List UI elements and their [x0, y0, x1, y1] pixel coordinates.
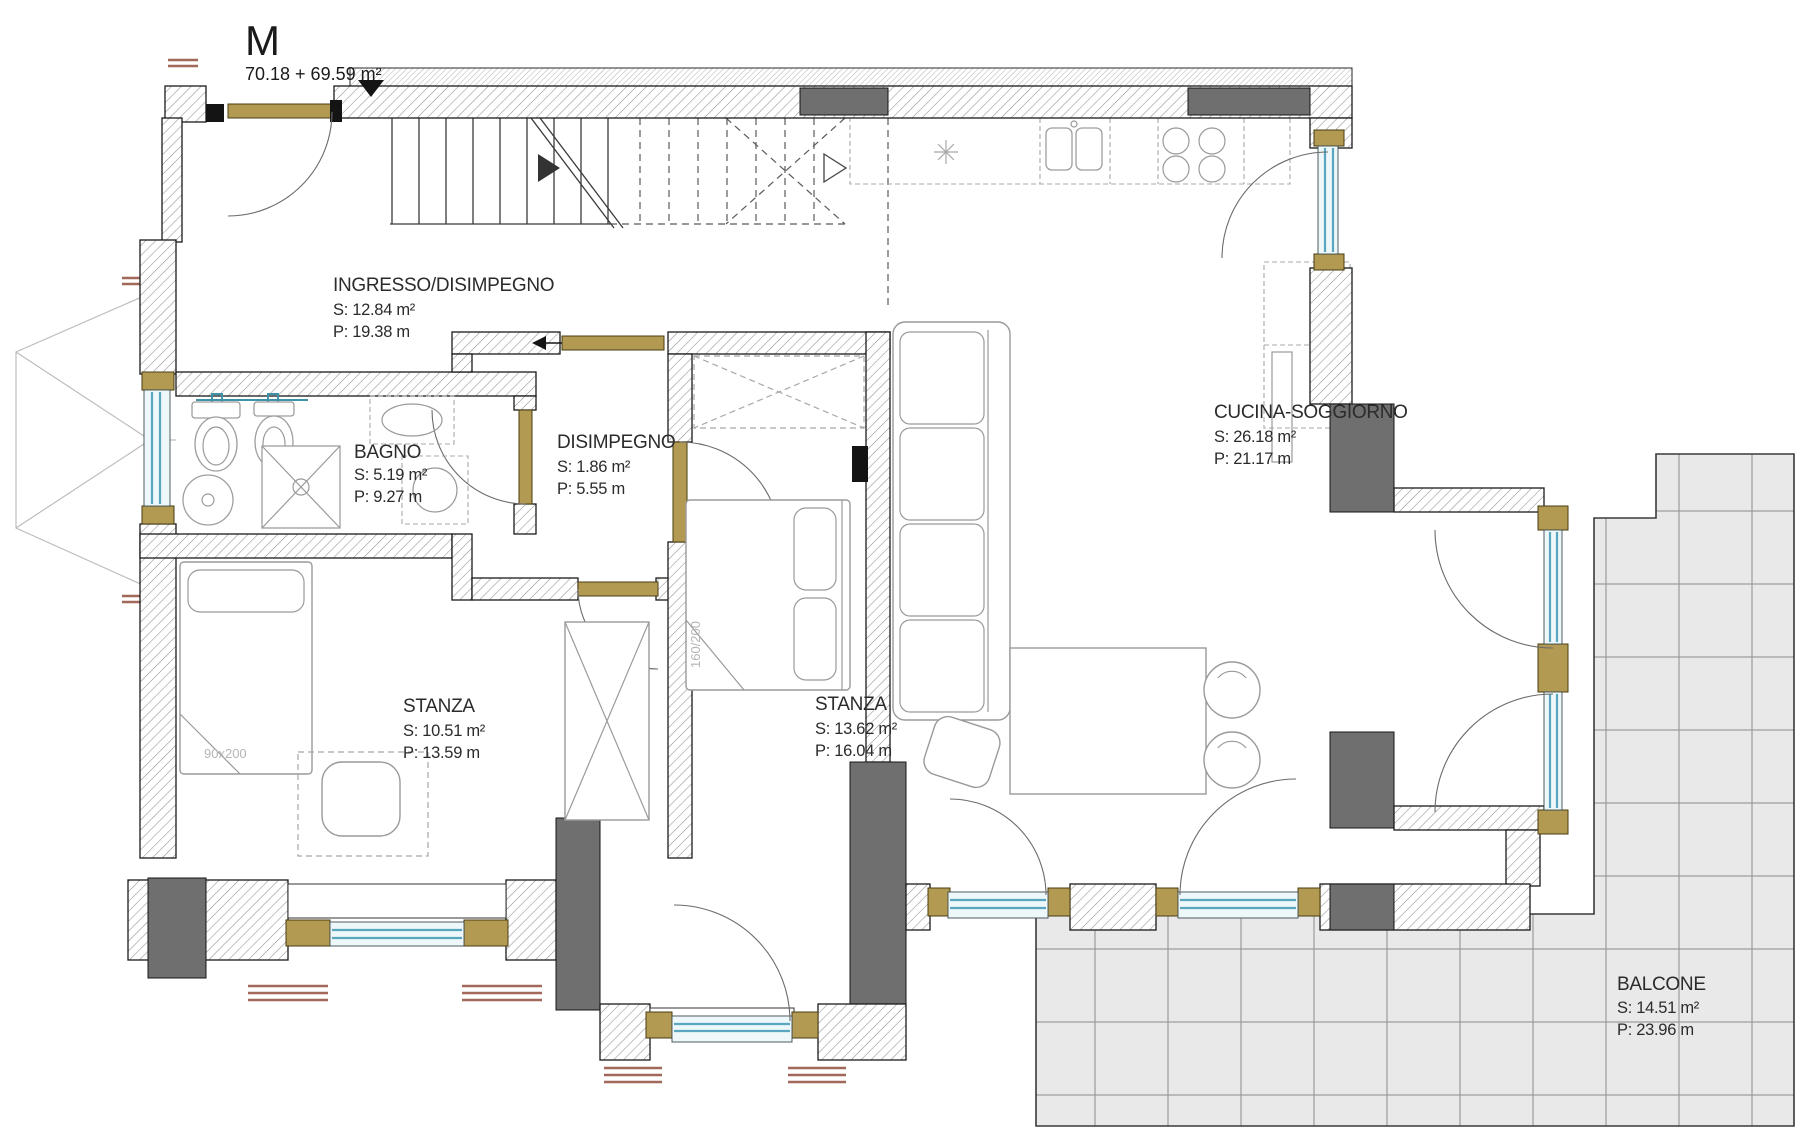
wall-bath-bottom [140, 534, 452, 558]
wall-divider-upper [668, 354, 692, 442]
floor-plan-drawing: M 70.18 + 69.59 m² INGRESSO/DISIMPEGNO S… [0, 0, 1804, 1135]
room-name: DISIMPEGNO [557, 432, 675, 453]
window-bedroom1 [286, 884, 508, 946]
single-bed [180, 562, 312, 774]
wall-niche-block [852, 446, 868, 482]
room-perimeter: P: 5.55 m [557, 480, 625, 498]
wall-bedroom2-bottom-a [600, 1004, 650, 1060]
room-perimeter: P: 13.59 m [403, 744, 480, 762]
wall-bath-east-upper [514, 396, 536, 410]
wall-right-upper [1310, 268, 1352, 404]
wall-bath-east-lower [514, 504, 536, 534]
room-surface: S: 12.84 m² [333, 301, 416, 319]
room-perimeter: P: 23.96 m [1617, 1021, 1694, 1039]
wall-mid-top-b [668, 332, 890, 354]
room-name: INGRESSO/DISIMPEGNO [333, 275, 554, 296]
wall-top-left [165, 86, 206, 122]
wall-left-upper [140, 240, 176, 374]
room-perimeter: P: 16.04 m [815, 742, 892, 760]
plan-title: M [245, 17, 280, 64]
wall-living-bottom-a [906, 884, 930, 930]
dining-table [1010, 648, 1206, 794]
room-surface: S: 14.51 m² [1617, 999, 1700, 1017]
entrance-jamb-block [206, 104, 224, 122]
room-surface: S: 1.86 m² [557, 458, 631, 476]
wall-living-bottom-b [1070, 884, 1156, 930]
shower-icon [262, 446, 340, 528]
room-perimeter: P: 21.17 m [1214, 450, 1291, 468]
toilet-icon [192, 402, 240, 471]
dining-chair-2 [1204, 732, 1260, 788]
room-label-stanza2: STANZA S: 13.62 m² P: 16.04 m [815, 694, 898, 760]
desk-chair [322, 762, 400, 836]
room-surface: S: 5.19 m² [354, 466, 428, 484]
room-perimeter: P: 19.38 m [333, 323, 410, 341]
pier-right-2 [1330, 732, 1394, 828]
room-perimeter: P: 9.27 m [354, 488, 422, 506]
room-surface: S: 10.51 m² [403, 722, 486, 740]
room-name: BAGNO [354, 442, 421, 463]
room-name: CUCINA-SOGGIORNO [1214, 402, 1408, 423]
wardrobe-bedroom1 [565, 622, 649, 820]
dining-chair-1 [1204, 662, 1260, 718]
round-basin-icon [183, 475, 233, 525]
single-bed-size-label: 90x200 [204, 746, 247, 761]
pier-top-1 [800, 88, 888, 115]
wall-bedroom2-bottom-b [818, 1004, 906, 1060]
pier-bedroom1 [148, 878, 206, 978]
wall-right-stub-top [1394, 488, 1544, 512]
window-left [142, 372, 174, 524]
pier-between-bedrooms [556, 818, 600, 1010]
double-bed [686, 500, 850, 690]
wall-left-connector [162, 118, 182, 242]
wall-mid-jog [452, 354, 472, 372]
sofa [893, 322, 1010, 720]
room-surface: S: 13.62 m² [815, 720, 898, 738]
wall-hall-bottom [472, 578, 578, 600]
pier-top-2 [1188, 88, 1310, 115]
room-name: STANZA [815, 694, 887, 715]
exterior-insulation-strip [350, 68, 1352, 86]
wall-bath-top [176, 372, 536, 396]
wall-left-lower [140, 524, 176, 858]
floor-plan-page: M 70.18 + 69.59 m² INGRESSO/DISIMPEGNO S… [0, 0, 1804, 1135]
room-surface: S: 26.18 m² [1214, 428, 1297, 446]
double-bed-size-label: 160/200 [688, 621, 703, 668]
pier-living-bottom [1330, 884, 1394, 930]
wall-right-connector [1506, 830, 1540, 886]
wall-bedroom1-bottom-b [506, 880, 556, 960]
wall-right-stub-bottom [1394, 806, 1544, 830]
room-name: BALCONE [1617, 974, 1706, 995]
room-label-balcone: BALCONE S: 14.51 m² P: 23.96 m [1617, 974, 1706, 1039]
room-name: STANZA [403, 696, 475, 717]
room-label-bagno: BAGNO S: 5.19 m² P: 9.27 m [354, 442, 428, 506]
wall-hall-jog [452, 534, 472, 600]
room-label-stanza1: STANZA S: 10.51 m² P: 13.59 m [403, 696, 486, 762]
